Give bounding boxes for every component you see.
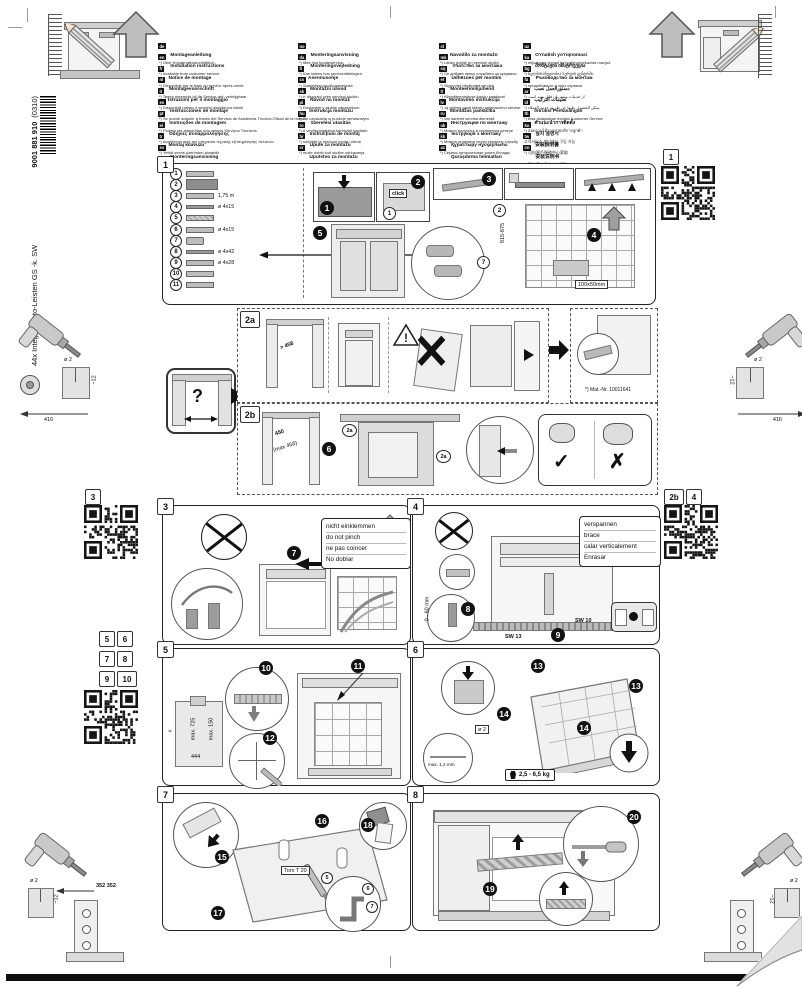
language-entry: uk Інструкція з монтажу*) Можна отримати… — [439, 122, 523, 133]
crop-mark — [390, 6, 391, 18]
callout-line — [333, 671, 373, 701]
language-entry: fa دستورالعمل نصب*) از خدمات مشتریان قاب… — [523, 77, 655, 88]
language-code-badge: it — [158, 88, 164, 94]
note-line: brace — [584, 531, 656, 542]
screwdriver-callout — [225, 667, 289, 731]
language-code-badge: no — [298, 43, 306, 49]
language-entry: lt Montavimo instrukcija*) Ją galima gau… — [439, 88, 523, 99]
part-row: 1 — [165, 168, 301, 179]
flow-arrow — [549, 340, 569, 360]
part-glyph-icon — [186, 260, 214, 266]
step-marker: 15 — [215, 850, 229, 864]
language-entry: pt Instruções de montagem*) Podem ser ad… — [158, 111, 298, 122]
hole-diameter: ø 2 — [754, 357, 762, 363]
correct-incorrect-panel: ✓ ✗ — [538, 414, 652, 486]
press-callout — [609, 733, 649, 773]
dim-max-725: max. 725 — [190, 718, 196, 741]
crop-mark — [8, 27, 22, 28]
dishwasher-iso — [331, 224, 405, 298]
dim-352: 352 352 — [96, 883, 116, 889]
language-code-badge: th — [523, 111, 530, 117]
step-marker: 9 — [551, 628, 565, 642]
section-6-label: 6 — [407, 641, 424, 658]
part-ref: 7 — [366, 901, 378, 913]
section-6: 6 13 13 14 14 ø 2 max. 1,2 mm 2,5 - 6,5 … — [412, 648, 660, 786]
pinch-warning-note: nicht einklemmendo not pinchne pas coinc… — [321, 518, 411, 569]
up-arrow-icon — [648, 10, 696, 60]
flange-icon — [20, 375, 40, 395]
note-line: No doblar — [326, 555, 406, 565]
part-label: ø 4x15 — [218, 204, 234, 210]
language-code-badge: uz — [523, 43, 531, 49]
language-code-badge: lv — [439, 99, 446, 105]
qr-section-label: 7 — [99, 651, 115, 667]
language-entry: sr Uputstvo za montažu*) Može se nabavit… — [298, 145, 439, 156]
language-code-badge: tw — [523, 133, 531, 139]
language-entry: az Quraşdırma təlimatları*) Müştəri xidm… — [439, 145, 523, 156]
language-entry: es Instrucciones de montaje*) Se puede a… — [158, 99, 298, 110]
part-number: 11 — [170, 279, 182, 291]
detail-callout-circle — [411, 226, 485, 300]
language-code-badge: nl — [158, 77, 165, 83]
language-title: Uputstvo za montažu — [309, 155, 357, 160]
part-glyph-icon — [186, 250, 214, 255]
question-box: ? — [166, 368, 236, 434]
spine-revision: (0310) — [30, 96, 39, 118]
bracket-callout: 6 7 — [325, 876, 381, 932]
language-entry: cs Montážní návod*) K dispozici přes ser… — [298, 77, 439, 88]
hole-dia-label: ø 2 — [475, 725, 489, 734]
dim-max-150: max. 150 — [208, 718, 214, 741]
step-marker: 20 — [627, 810, 641, 824]
qr-code — [661, 166, 715, 220]
detail-callout-circle — [171, 568, 243, 640]
part-number: 10 — [170, 268, 182, 280]
section-2b-label: 2b — [240, 406, 260, 423]
part-glyph-icon — [186, 193, 214, 199]
language-entry: en Installation instructions*) Available… — [158, 54, 298, 65]
level-icon-box — [611, 602, 657, 632]
plate-size-label: 100x50mm — [575, 280, 608, 289]
svg-text:!: ! — [404, 331, 408, 345]
language-title: Quraşdırma təlimatları — [451, 155, 502, 160]
language-entry: bg Ръководство за монтаж*) придобива се … — [523, 66, 655, 77]
board-section — [62, 367, 90, 399]
language-code-badge: sv — [158, 145, 166, 151]
language-entry: sl Navodilo za montažo*) Lahko dobite pr… — [439, 43, 523, 54]
hole-depth: ~12 — [728, 375, 734, 384]
door-weight-badge: 2,5 - 6,5 kg — [505, 769, 555, 781]
inset-step1: 1 — [313, 172, 375, 222]
language-entry: ro Instrucțiuni de montaj*) solicitați l… — [298, 122, 439, 133]
language-grid: de Montageanleitung*) Über Kundendienst … — [158, 43, 655, 156]
language-code-badge: ro — [298, 122, 305, 128]
step-marker: 13 — [629, 679, 643, 693]
qr-code — [84, 505, 138, 559]
inset-step2: click 1 2 — [376, 172, 430, 222]
dim-x: x — [167, 730, 173, 733]
weight-icon — [510, 771, 516, 779]
language-code-badge: de — [158, 43, 166, 49]
part-ref-2a: 2a — [342, 424, 357, 437]
part-ref: 7 — [477, 256, 490, 269]
language-title: Monteringsanvisning — [170, 155, 218, 160]
mount-panel: 2a 2a — [340, 410, 460, 490]
step-marker: 10 — [259, 661, 273, 675]
gap-callout — [439, 554, 475, 590]
language-entry: el Οδηγίες συναρμολόγησης*) Διατίθενται … — [158, 122, 298, 133]
marking-callout — [229, 733, 285, 789]
page-curl — [727, 902, 802, 987]
language-entry: fi Asennusohje*) Saatavissa huoltopalvel… — [298, 66, 439, 77]
hole-diameter: ø 2 — [790, 878, 798, 884]
qr-section-label: 2b — [664, 489, 684, 505]
step-marker: 2 — [411, 175, 425, 189]
language-code-badge: cs — [298, 77, 306, 83]
part-glyph-icon — [186, 271, 214, 277]
language-code-badge: bg — [523, 66, 531, 72]
part-ref: 1 — [383, 207, 396, 220]
language-code-badge: pl — [298, 99, 305, 105]
question-mark: ? — [192, 386, 203, 407]
part-number: 3 — [170, 190, 182, 202]
part-glyph-icon — [186, 171, 214, 177]
section-2b: 2b 450 (max 458) 6 2a 2a ✓ ✗ — [237, 403, 658, 495]
torx-label: Torx T 20 — [281, 866, 310, 875]
part-number: 2 — [170, 179, 182, 191]
language-code-badge: fa — [523, 77, 530, 83]
language-entry: it Istruzioni per il montaggio*) Disponi… — [158, 88, 298, 99]
hole-depth: ~12 — [92, 375, 98, 384]
part-row: 3 1,75 m — [165, 190, 301, 201]
prohibited-cross: ✕ — [413, 329, 450, 377]
language-entry: et Monteerimisjuhend*) Klienditeeninduse… — [439, 77, 523, 88]
inset-strip — [504, 168, 574, 200]
language-title: 安装说明书 — [535, 155, 559, 160]
crop-mark — [390, 956, 391, 968]
qr-section-label: 9 — [99, 671, 115, 687]
brace-note: verspannenbracecalar verticalementEnrasa… — [579, 516, 661, 567]
no-pinch-callout — [201, 514, 247, 560]
part-ref: 2 — [493, 204, 506, 217]
note-line: Enrasar — [584, 553, 656, 563]
section-8-label: 8 — [407, 786, 424, 803]
crop-mark — [775, 6, 776, 18]
part-label: ø 4x28 — [218, 260, 234, 266]
language-code-badge: az — [439, 145, 446, 151]
section-5: 5 x max. 725 max. 150 444 10 12 11 — [162, 648, 411, 786]
language-code-badge: sr — [298, 145, 305, 151]
gap-callout: max. 1,2 mm — [423, 733, 473, 783]
drill-template-left: ø 2 ~12 416 — [18, 305, 138, 435]
step-marker: 3 — [482, 172, 496, 186]
section-3-label: 3 — [157, 498, 174, 515]
niche-width-dim: > 458 — [279, 341, 294, 352]
language-entry: hu Szerelési utasítás*) A vevőszolgálato… — [298, 111, 439, 122]
language-code-badge: fi — [298, 66, 304, 72]
language-code-badge: da — [298, 54, 306, 60]
step-marker: 6 — [322, 442, 336, 456]
part-row: 4 ø 4x15 — [165, 202, 301, 213]
check-icon: ✓ — [553, 449, 570, 474]
language-entry: tw 安裝說明書*) 可向客戶服務中心索取 — [523, 133, 655, 144]
dim-416: 416 — [773, 417, 782, 423]
qr-code — [84, 690, 138, 744]
warning-panel: ! ✕ — [388, 317, 467, 393]
language-entry: da Monteringsvejledning*) Kan købes hos … — [298, 54, 439, 65]
language-code-badge: pt — [158, 111, 165, 117]
step-marker: 4 — [587, 228, 601, 242]
language-column-2: no Monteringsanvisning*) fåes hos kundes… — [298, 43, 439, 156]
up-arrow-icon — [112, 10, 160, 60]
part-row: 2 — [165, 179, 301, 190]
part-label: ø 4x42 — [218, 249, 234, 255]
wrong-gap-callout — [435, 512, 473, 550]
note-line: ne pas coincer — [326, 544, 406, 555]
click-label: click — [389, 189, 407, 198]
qr-section-label: 5 — [99, 631, 115, 647]
note-line: verspannen — [584, 520, 656, 531]
section-2a: 2a > 458 ! ✕ — [237, 308, 549, 403]
section-2a-label: 2a — [240, 311, 260, 328]
language-code-badge: tr — [158, 133, 164, 139]
language-code-badge: sk — [298, 88, 306, 94]
language-entry: sq Udhëzues për montim*) Sigurohet nëpër… — [439, 66, 523, 77]
step-marker: 14 — [577, 721, 591, 735]
language-code-badge: es — [158, 99, 166, 105]
language-entry: ar تعليمات التركيب*) يمكن الحصول عليها ع… — [523, 88, 655, 99]
drill-template-right: ø 2 ~12 416 — [688, 305, 802, 435]
language-column-3: sl Navodilo za montažo*) Lahko dobite pr… — [439, 43, 523, 156]
language-entry: hr Upute za montažu*) može dobiti kod sl… — [298, 133, 439, 144]
spine-number: 9001 881 910 — [30, 122, 39, 168]
section-1: 1 1 2 3 1,75 m — [162, 163, 656, 305]
door-weight: 2,5 - 6,5 kg — [519, 772, 550, 778]
divider — [303, 168, 304, 298]
step-marker: 1 — [320, 201, 334, 215]
qr-code — [664, 505, 718, 559]
language-entry: fr Notice de montage*) Disponible par le… — [158, 66, 298, 77]
part-ref: 6 — [362, 883, 374, 895]
step-marker: 7 — [287, 546, 301, 560]
manual-page: de Montageanleitung*) Über Kundendienst … — [0, 0, 802, 987]
language-code-badge: cn — [523, 145, 531, 151]
bracket-foot — [66, 952, 124, 962]
step-marker: 12 — [263, 731, 277, 745]
part-glyph-icon — [186, 215, 214, 221]
language-code-badge: sq — [439, 66, 447, 72]
dim-444: 444 — [191, 754, 200, 760]
drill-template-bottom-left: ø 2 ~12 352 352 — [22, 828, 152, 958]
language-code-badge: fr — [158, 66, 164, 72]
part-number: 7 — [170, 235, 182, 247]
barcode — [40, 96, 56, 154]
language-entry: mk Упатство за монтажа*) Се добива преку… — [439, 54, 523, 65]
language-entry: ko 설치 설명서고객서비스 센터에서 구입 가능 — [523, 122, 655, 133]
part-number: 6 — [170, 224, 182, 236]
bracket-plate — [74, 900, 98, 958]
part-glyph-icon — [186, 227, 214, 233]
part-label: 1,75 m — [218, 193, 234, 199]
hoses — [339, 590, 395, 634]
section-4: 4 verspannenbracecalar verticalementEnra… — [412, 505, 660, 645]
language-entry: uz O'rnatish yo'riqnomasi*) mijozlarga x… — [523, 43, 655, 54]
detail-callout-circle — [466, 416, 534, 484]
language-entry: lv Montāžas pamācība*) Var saņemt servis… — [439, 99, 523, 110]
note-line: do not pinch — [326, 533, 406, 544]
parts-list: 1 2 3 1,75 m 4 — [165, 168, 301, 298]
mounting-plate — [553, 260, 589, 276]
language-entry: ka მონტაჟის ინსტრუქცია*) ხელმისაწვდომია … — [523, 54, 655, 65]
part-row: 11 — [165, 280, 301, 291]
step-marker: 18 — [361, 818, 375, 832]
width-450: 450 — [274, 429, 285, 438]
gap-dim: max. 1,2 mm — [428, 762, 455, 767]
niche-height-dim: 815-875 — [500, 223, 506, 243]
part-row: 5 — [165, 213, 301, 224]
part-glyph-icon — [186, 205, 214, 210]
section-5-label: 5 — [157, 641, 174, 658]
language-code-badge: lt — [439, 88, 445, 94]
step-marker: 8 — [461, 602, 475, 616]
language-code-badge: el — [158, 122, 165, 128]
strip-detail-callout — [539, 872, 593, 926]
part-glyph-icon — [186, 282, 214, 288]
material-number: *) Mat.-Nr. 10011641 — [585, 387, 631, 393]
language-entry: de Montageanleitung*) Über Kundendienst … — [158, 43, 298, 54]
up-arrow-icon — [601, 206, 627, 232]
language-entry: tr Montaj kılavuzu*) Yetkili servis üzer… — [158, 133, 298, 144]
part-number: 9 — [170, 257, 182, 269]
language-column-1: de Montageanleitung*) Über Kundendienst … — [158, 43, 298, 156]
template-callout — [441, 661, 495, 715]
language-entry: th คำแนะนำการติดตั้ง*) สอบถามได้จากฝ่ายบ… — [523, 111, 655, 122]
qr-section-label: 8 — [117, 651, 133, 667]
language-code-badge: id — [523, 99, 530, 105]
step-marker: 19 — [483, 882, 497, 896]
step-marker: 11 — [351, 659, 365, 673]
language-code-badge: ko — [523, 122, 531, 128]
part-number: 4 — [170, 201, 182, 213]
section-3: 3 nicht einklemmendo not pinchne pas coi… — [162, 505, 411, 645]
language-code-badge: kk — [439, 133, 447, 139]
qr-section-label: 10 — [117, 671, 137, 687]
section-1-label: 1 — [157, 156, 174, 173]
part-number: 8 — [170, 246, 182, 258]
adjust-range-dim: 0 - 60 mm — [424, 597, 430, 622]
bottom-bar — [6, 974, 796, 981]
step-marker: 17 — [211, 906, 225, 920]
language-code-badge: ar — [523, 88, 530, 94]
dim-arrow — [56, 886, 96, 896]
door-mount-panel — [468, 317, 544, 393]
dim-arrow — [20, 409, 90, 419]
language-code-badge: uk — [439, 122, 447, 128]
wrench-size-13: SW 13 — [505, 634, 522, 640]
niche-width-panel: 450 (max 458) — [262, 412, 320, 488]
language-code-badge: sl — [439, 43, 446, 49]
language-code-badge: ka — [523, 54, 531, 60]
board-section — [736, 367, 764, 399]
inset-step3: 3 — [433, 168, 503, 200]
note-line: calar verticalement — [584, 542, 656, 553]
part-row: 10 — [165, 269, 301, 280]
cabinet-panel — [334, 317, 384, 393]
threaded-rod — [473, 622, 625, 631]
language-entry: no Monteringsanvisning*) fåes hos kundes… — [298, 43, 439, 54]
language-entry: nl Montagevoorschrift*) Tegen meerprijs … — [158, 77, 298, 88]
step-marker: 5 — [313, 226, 327, 240]
language-entry: cn 安装说明书*) 可向客户服务中心索取 — [523, 145, 655, 156]
qr-section-label: 4 — [686, 489, 702, 505]
part-glyph-icon — [186, 237, 204, 245]
section-7: 7 15 16 Torx T 20 17 6 7 5 18 — [162, 793, 411, 931]
qr-section-label: 1 — [663, 149, 679, 165]
step-marker: 14 — [497, 707, 511, 721]
language-entry: pl Instrukcja montażu*) Do uzyskania w p… — [298, 99, 439, 110]
language-code-badge: en — [158, 54, 166, 60]
dishwasher-front — [259, 564, 331, 636]
language-code-badge: hr — [298, 133, 305, 139]
section-4-label: 4 — [407, 498, 424, 515]
language-entry: sv Monteringsanvisning*) Kan fås via Ser… — [158, 145, 298, 156]
part-glyph-icon — [186, 179, 218, 190]
part-label: ø 4x15 — [218, 227, 234, 233]
step-marker: 16 — [315, 814, 329, 828]
language-code-badge: hu — [298, 111, 306, 117]
part-ref: 5 — [321, 872, 333, 884]
language-entry: id Intruksi Pemasangan*) bisa didapatkan… — [523, 99, 655, 110]
language-code-badge: mk — [439, 54, 448, 60]
width-max: (max 458) — [273, 440, 298, 453]
hole-diameter: ø 2 — [30, 878, 38, 884]
accessory-box: *) Mat.-Nr. 10011641 — [570, 308, 658, 403]
cross-icon: ✗ — [609, 449, 626, 474]
board-section — [28, 888, 54, 918]
language-entry: sk Návod na montáž*) Dostanete v službe … — [298, 88, 439, 99]
step-marker: 13 — [531, 659, 545, 673]
part-row: 7 — [165, 235, 301, 246]
ruler-icon — [758, 14, 772, 78]
qr-section-label: 3 — [85, 489, 101, 505]
wrench-size-10: SW 10 — [575, 618, 592, 624]
language-code-badge: et — [439, 77, 446, 83]
language-entry: kk Құрастыру нұсқаулығы*) Сервис орталығ… — [439, 133, 523, 144]
section-7-label: 7 — [157, 786, 174, 803]
language-entry: ru Инструкция по монтажу*) Можно получит… — [439, 111, 523, 122]
note-line: nicht einklemmen — [326, 522, 406, 533]
part-row: 6 ø 4x15 — [165, 224, 301, 235]
insert-arrow — [295, 558, 321, 570]
part-ref-2a: 2a — [436, 450, 451, 463]
dim-416: 416 — [44, 417, 53, 423]
language-column-4: uz O'rnatish yo'riqnomasi*) mijozlarga x… — [523, 43, 655, 156]
language-code-badge: ru — [439, 111, 446, 117]
niche-panel: > 458 — [264, 317, 329, 393]
inset-arrows — [575, 168, 651, 200]
qr-section-label: 6 — [117, 631, 133, 647]
crop-mark — [27, 8, 28, 22]
part-number: 5 — [170, 212, 182, 224]
door-dimension-sketch: x max. 725 max. 150 444 — [175, 701, 223, 767]
dim-arrow — [736, 409, 802, 419]
section-8: 8 19 20 — [412, 793, 660, 931]
hole-diameter: ø 2 — [64, 357, 72, 363]
width-arrows — [184, 414, 218, 424]
up-arrow-icon — [511, 834, 525, 850]
